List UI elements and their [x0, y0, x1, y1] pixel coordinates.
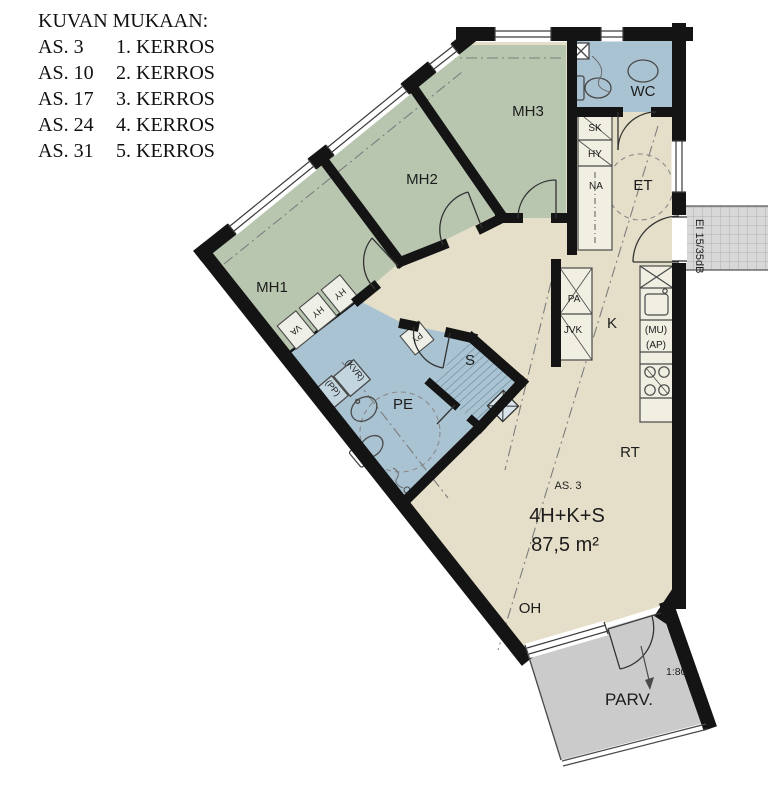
room-label-wc: WC [631, 83, 656, 100]
apartment-area: 87,5 m² [531, 534, 599, 556]
legend-floor: 1. KERROS [116, 36, 215, 58]
fire-rating-label: EI 15/35dB [693, 219, 705, 273]
legend-row: AS. 315. KERROS [38, 138, 215, 164]
legend-apartment: AS. 24 [38, 112, 116, 138]
room-label-oh: OH [519, 600, 542, 617]
legend-row: AS. 102. KERROS [38, 60, 215, 86]
room-label-et: ET [633, 177, 652, 194]
room-label-k: K [607, 315, 617, 332]
legend-apartment: AS. 31 [38, 138, 116, 164]
room-label-s: S [465, 352, 475, 369]
legend-row: AS. 173. KERROS [38, 86, 215, 112]
legend-title: KUVAN MUKAAN: [38, 8, 215, 34]
kitchen-cabinet-pa-jvk [560, 268, 592, 360]
room-label-rt: RT [620, 444, 640, 461]
legend-apartment: AS. 10 [38, 60, 116, 86]
legend-floor: 4. KERROS [116, 114, 215, 136]
scale-label: 1:80 [666, 666, 687, 678]
legend-floor: 5. KERROS [116, 140, 215, 162]
apartment-number: AS. 3 [555, 480, 582, 492]
closet-label-hy: HY [588, 149, 602, 160]
cabinet-label-jvk: JVK [564, 325, 583, 336]
apartment-layout: 4H+K+S [529, 505, 605, 527]
cabinet-label-ap: (AP) [646, 340, 666, 351]
room-label-parv: PARV. [605, 690, 653, 709]
legend-apartment: AS. 17 [38, 86, 116, 112]
room-label-pe: PE [393, 396, 413, 413]
closet-label-sk: SK [588, 123, 602, 134]
entry-door-gap [672, 215, 687, 263]
closet-label-na: NA [589, 181, 603, 192]
legend-row: AS. 31. KERROS [38, 34, 215, 60]
legend-row: AS. 244. KERROS [38, 112, 215, 138]
room-label-mh3: MH3 [512, 103, 544, 120]
legend: KUVAN MUKAAN: AS. 31. KERROS AS. 102. KE… [38, 8, 215, 164]
cabinet-label-mu: (MU) [645, 325, 667, 336]
legend-floor: 2. KERROS [116, 62, 215, 84]
legend-apartment: AS. 3 [38, 34, 116, 60]
room-label-mh2: MH2 [406, 171, 438, 188]
room-label-mh1: MH1 [256, 279, 288, 296]
legend-floor: 3. KERROS [116, 88, 215, 110]
cabinet-label-pa: PA [568, 294, 581, 305]
